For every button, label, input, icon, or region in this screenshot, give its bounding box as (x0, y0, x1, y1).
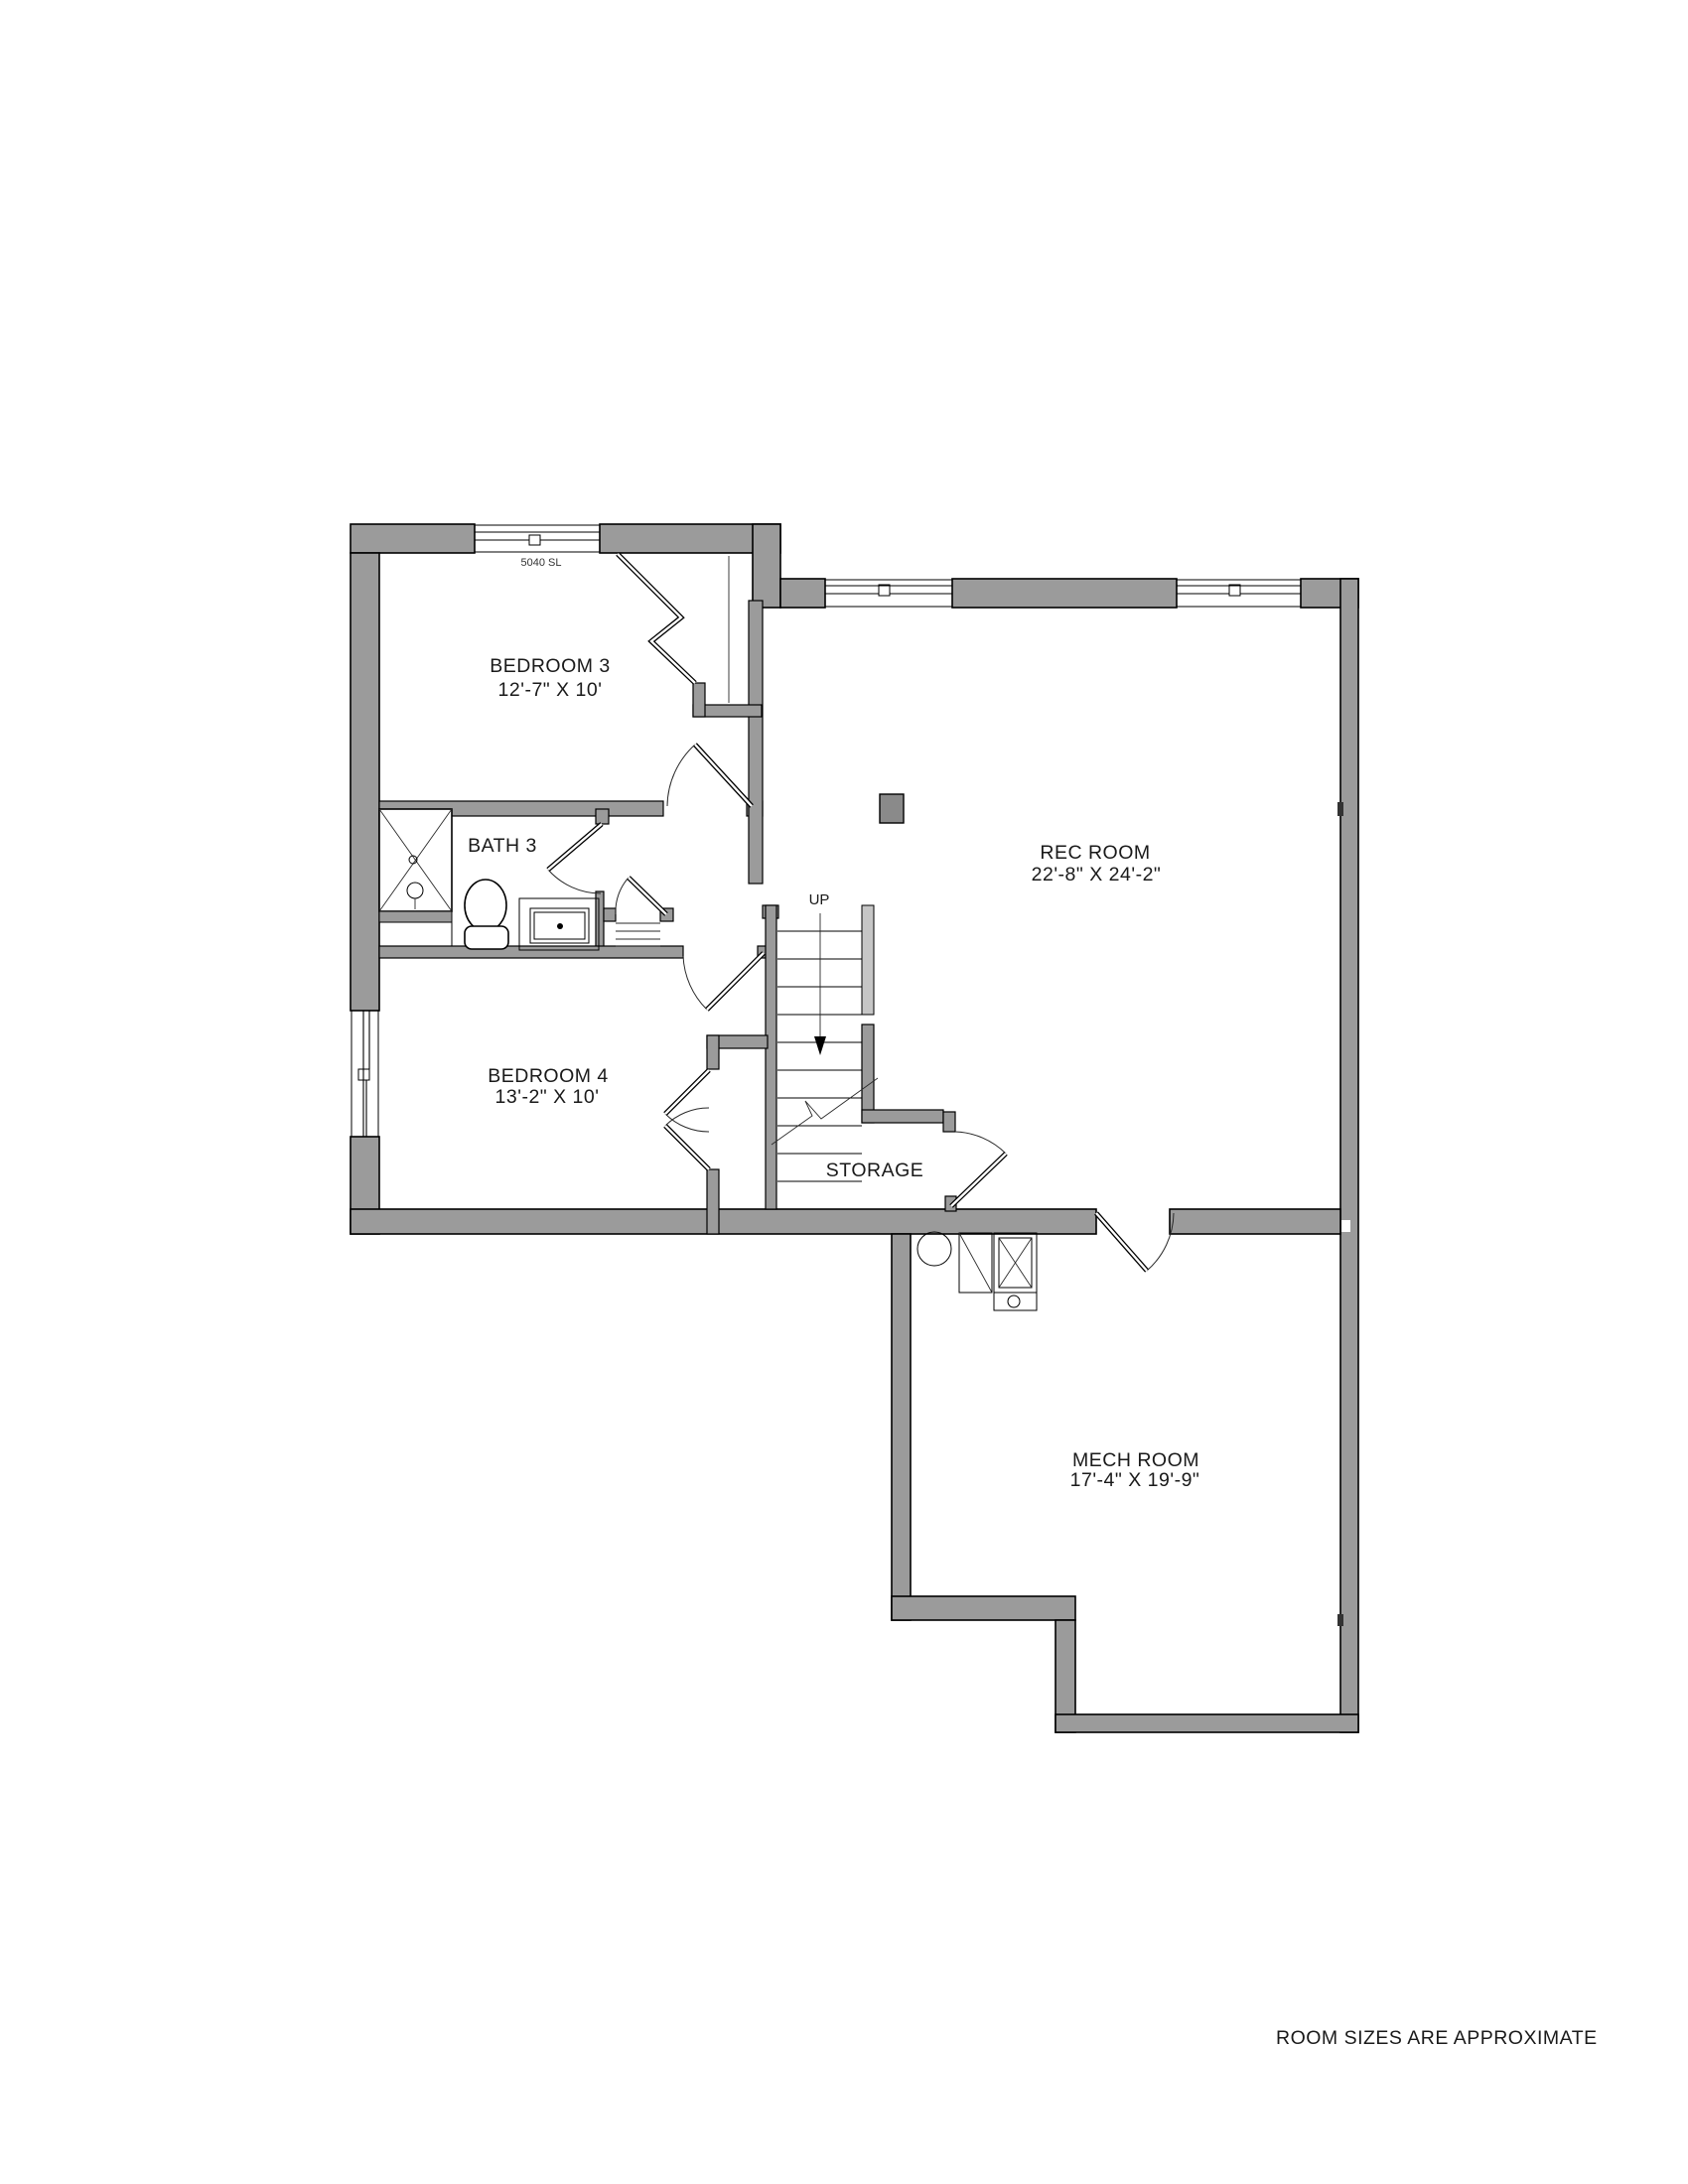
vanity-sink (519, 898, 599, 950)
linen-shelves (616, 923, 660, 946)
label-mech-dims: 17'-4" X 19'-9" (1070, 1469, 1200, 1491)
wall-top-rec-mid (952, 579, 1177, 608)
floor-plan-page: UP (0, 0, 1688, 2184)
window-tick (529, 535, 540, 545)
wall-storage-step-v (943, 1112, 955, 1132)
wall-top-rec-left (780, 579, 825, 608)
floor-plan-drawing: UP (0, 0, 1688, 2184)
door-mech (1096, 1213, 1174, 1271)
window-tick (879, 585, 890, 596)
room-labels: BEDROOM 3 12'-7" X 10' BATH 3 REC ROOM 2… (468, 557, 1199, 1491)
wall-stair-left (766, 905, 776, 1209)
stair-arrow-head (814, 1036, 826, 1055)
wall-left-upper (351, 553, 379, 1011)
wall-right (1340, 579, 1358, 1732)
door-storage (951, 1132, 1006, 1206)
outer-walls (351, 524, 1358, 1732)
railing-stair-right (862, 905, 874, 1015)
label-window-size: 5040 SL (521, 557, 562, 569)
wall-notch-junction (1341, 1220, 1350, 1232)
wall-mark-lower (1337, 1614, 1343, 1626)
label-bedroom4-dims: 13'-2" X 10' (495, 1086, 600, 1108)
label-mech-name: MECH ROOM (1072, 1449, 1199, 1471)
wall-bottom-left-wing (351, 1209, 1096, 1234)
post-bedroom4-bottom (707, 1169, 719, 1234)
label-rec-name: REC ROOM (1040, 842, 1150, 864)
shower-niche (379, 922, 452, 946)
window-tick (1229, 585, 1240, 596)
interior-walls (379, 601, 956, 1234)
wall-mech-step-h (892, 1596, 1075, 1620)
wall-stair-right (862, 1024, 874, 1123)
label-bedroom3-name: BEDROOM 3 (490, 655, 611, 677)
toilet (465, 880, 508, 949)
door-closet-bifold (618, 554, 695, 683)
wall-step-block (753, 524, 780, 608)
support-column (880, 794, 904, 823)
wall-mech-top (1170, 1209, 1340, 1234)
door-bedroom4-double (665, 1070, 709, 1169)
wall-storage-step-h (862, 1110, 943, 1123)
door-hall (683, 953, 764, 1010)
block-linen-left (604, 908, 616, 921)
window-bedroom4 (352, 1011, 378, 1137)
door-linen (616, 878, 666, 914)
sink-drain (557, 923, 563, 929)
furnace-unit-b (994, 1233, 1037, 1310)
window-rec-right (1177, 580, 1301, 607)
shower (379, 809, 452, 946)
label-bath3-name: BATH 3 (468, 835, 537, 857)
window-bedroom3 (475, 525, 600, 552)
wall-mech-left (892, 1234, 911, 1620)
wall-hall-bottom (379, 946, 683, 958)
wall-mark-upper (1337, 802, 1343, 816)
wall-vanity-side (596, 891, 604, 950)
wall-closet-stub-v (693, 683, 705, 717)
wall-top-bedroom3-left (351, 524, 475, 553)
door-bath3 (548, 824, 602, 893)
windows (352, 525, 1301, 1137)
label-storage-name: STORAGE (826, 1160, 924, 1181)
wall-bedroom3-right (749, 601, 763, 884)
shower-curb (379, 911, 452, 922)
label-bedroom3-dims: 12'-7" X 10' (498, 679, 603, 701)
window-rec-left (825, 580, 952, 607)
water-heater (917, 1232, 951, 1266)
post-bedroom4-top (707, 1035, 719, 1069)
wall-mech-bottom (1055, 1714, 1358, 1732)
furnace-unit-a (959, 1233, 992, 1293)
label-bedroom4-name: BEDROOM 4 (488, 1065, 609, 1087)
footnote-disclaimer: ROOM SIZES ARE APPROXIMATE (1276, 2027, 1598, 2049)
furnace-drain (1008, 1296, 1020, 1307)
door-bedroom3 (667, 745, 752, 806)
stair-up-label: UP (809, 891, 830, 908)
label-rec-dims: 22'-8" X 24'-2" (1032, 864, 1162, 886)
post-bath-door (596, 809, 609, 824)
